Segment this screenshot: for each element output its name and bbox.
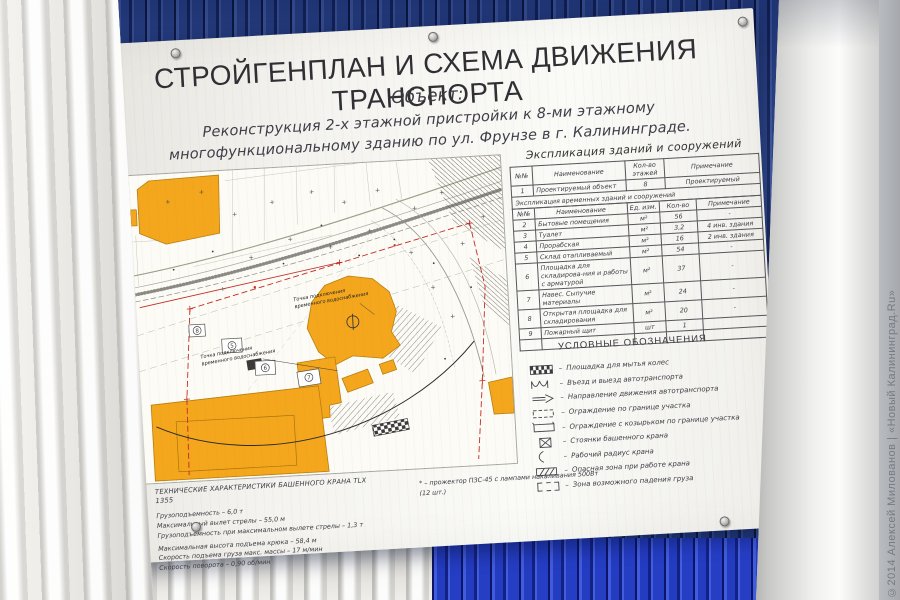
table-cell: 24: [664, 281, 702, 302]
legend-dash: –: [561, 408, 565, 416]
crane-radius-icon: [533, 450, 564, 465]
photo-of-construction-board: СТРОЙГЕНПЛАН И СХЕМА ДВИЖЕНИЯ ТРАНСПОРТА…: [0, 0, 900, 600]
crane-stand-icon: [533, 435, 564, 450]
table-cell: 20: [665, 300, 703, 321]
site-fence-icon: [531, 406, 562, 421]
legend-section: УСЛОВНЫЕ ОБОЗНАЧЕНИЯ – Площадка для мыть…: [527, 330, 775, 495]
photographer-watermark: ©2014 Алексей Милованов | «Новый Калинин…: [886, 0, 898, 598]
screw-icon: [719, 516, 730, 527]
table-cell: м²: [632, 302, 665, 323]
table-cell: м²: [630, 256, 664, 285]
table-header-cell: №№: [510, 166, 533, 186]
table-cell: 6: [515, 263, 539, 291]
table-cell: -: [699, 251, 765, 282]
legend-dash: –: [559, 364, 563, 372]
site-plan-map: 8 5 6 7: [127, 154, 518, 484]
legend-label: Рабочий радиус крана: [571, 447, 654, 460]
building-top-left: [137, 175, 223, 245]
table-cell: 8: [518, 309, 541, 329]
temporary-buildings-table: №№ Наименование Ед. изм. Кол-во Примечан…: [512, 195, 770, 352]
legend-dash: –: [560, 394, 564, 402]
legend-dash: –: [562, 423, 566, 431]
screw-icon: [170, 48, 181, 59]
table-cell: м²: [631, 283, 664, 304]
bottom-blue-fence-section: [432, 538, 764, 600]
wheel-wash-pad-icon: [528, 362, 559, 377]
table-cell: 37: [662, 254, 701, 283]
legend-dash: –: [563, 452, 567, 460]
legend-dash: –: [563, 437, 567, 445]
site-plan-drawing: 8 5 6 7: [128, 155, 517, 483]
legend-dash: –: [559, 379, 563, 387]
table-header-cell: Кол-во этажей: [624, 159, 665, 180]
traffic-direction-icon: [530, 391, 561, 406]
screw-icon: [737, 16, 748, 27]
floodlight-note: * – прожектор ПЗС-45 с лампами накаливан…: [419, 469, 600, 498]
explication-section: Экспликация зданий и сооружений №№ Наиме…: [509, 136, 770, 352]
screw-icon: [428, 32, 439, 43]
table-cell: 7: [517, 290, 540, 310]
construction-board: СТРОЙГЕНПЛАН И СХЕМА ДВИЖЕНИЯ ТРАНСПОРТА…: [94, 8, 782, 564]
canopy-fence-icon: [532, 420, 563, 435]
entry-exit-icon: [529, 377, 560, 392]
